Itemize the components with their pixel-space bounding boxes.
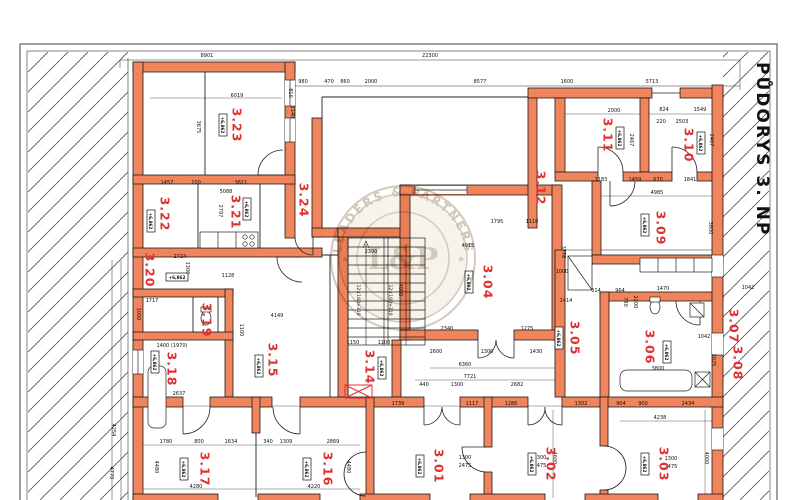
dimension-label: 1780 bbox=[160, 439, 173, 445]
dimension-label: 860 bbox=[340, 79, 350, 85]
room-number-label: 3.14 bbox=[363, 350, 378, 385]
svg-text:+6,862: +6,862 bbox=[220, 117, 225, 134]
room-number-label: 3.21 bbox=[229, 195, 244, 230]
door-3-23 bbox=[258, 150, 283, 175]
dimension-label: 1457 bbox=[161, 180, 174, 186]
dimension-label: 980 bbox=[298, 79, 308, 85]
dimension-label: 1600 bbox=[561, 79, 574, 85]
floor-plan-svg: 8901223009804708602000857716005713601936… bbox=[0, 0, 800, 500]
double-door-hall bbox=[424, 407, 460, 425]
door-3-15 bbox=[277, 257, 302, 282]
elevation-tag: +6,862 bbox=[697, 132, 705, 154]
svg-text:+6,862: +6,862 bbox=[379, 360, 384, 377]
elevation-tag: +6,862 bbox=[147, 210, 155, 232]
dimension-label: 1634 bbox=[225, 439, 238, 445]
svg-text:+6,862: +6,862 bbox=[181, 461, 186, 478]
svg-text:+6,862: +6,862 bbox=[617, 130, 622, 147]
elevation-tag: +6,862 bbox=[528, 453, 536, 475]
dimension-label: 2475 bbox=[459, 463, 472, 469]
dimension-label: 2503 bbox=[676, 119, 689, 125]
dimension-label: 1549 bbox=[694, 107, 707, 113]
swing-door-3-02-3-03 bbox=[604, 446, 626, 490]
watermark-monogram: L&P bbox=[368, 242, 439, 277]
dimension-label: 800 bbox=[194, 439, 204, 445]
room-number-label: 3.05 bbox=[568, 321, 583, 356]
dimension-label: 1117 bbox=[466, 401, 479, 407]
washer-3-06 bbox=[695, 372, 710, 387]
dimension-label: 4480 bbox=[153, 461, 159, 474]
dimension-label: 1110 bbox=[526, 219, 539, 225]
dimension-label: 2600 bbox=[430, 349, 443, 355]
elevation-tag: +6,862 bbox=[616, 127, 624, 149]
bathtub-3-06 bbox=[620, 370, 692, 391]
dimension-label: 1400 (1970) bbox=[157, 343, 188, 349]
elevation-tag: +6,862 bbox=[641, 214, 649, 236]
dimension-label: 6360 bbox=[459, 362, 472, 368]
elevation-tag: +6,862 bbox=[243, 198, 251, 220]
dimension-label: 1739 bbox=[392, 401, 405, 407]
svg-text:+6,862: +6,862 bbox=[642, 456, 647, 473]
elevation-tag: +6,862 bbox=[555, 327, 563, 349]
svg-text:+6,862: +6,862 bbox=[664, 344, 669, 361]
dimension-label: 2340 bbox=[441, 326, 454, 332]
room-number-label: 3.11 bbox=[601, 118, 616, 153]
dimension-label: 6019 bbox=[231, 93, 244, 99]
dimension-label: 22300 bbox=[422, 53, 438, 59]
room-number-label: 3.09 bbox=[654, 211, 669, 246]
dimension-label: 1414 bbox=[560, 298, 573, 304]
svg-text:+6,862: +6,862 bbox=[148, 213, 153, 230]
watermark-star-left: ★ bbox=[341, 255, 349, 265]
kitchen-counter-3-09 bbox=[640, 258, 712, 272]
elevation-tag: +6,862 bbox=[303, 458, 311, 480]
dimension-label: 900 bbox=[638, 401, 648, 407]
dimension-label: 100 bbox=[191, 180, 201, 186]
bathtub-3-18 bbox=[148, 366, 166, 428]
door-3-16 bbox=[273, 407, 300, 434]
room-number-label: 3.24 bbox=[297, 183, 312, 218]
svg-text:+6,862: +6,862 bbox=[169, 275, 186, 280]
shaft-marker bbox=[345, 385, 372, 398]
sheet-title: PŮDORYS 3. NP bbox=[752, 62, 775, 236]
dimension-label: 514 bbox=[591, 288, 601, 294]
room-number-label: 3.10 bbox=[682, 128, 697, 163]
dimension-label: 1795 bbox=[491, 219, 504, 225]
dimension-label: 1100 bbox=[378, 340, 391, 346]
sink-3-06 bbox=[690, 303, 704, 317]
dimension-label: 8901 bbox=[201, 53, 214, 59]
dimension-label: 4985 bbox=[651, 190, 664, 196]
dimension-label: 1300 bbox=[459, 455, 472, 461]
dimension-label: 1000 bbox=[135, 308, 141, 321]
dimension-label: 3800 bbox=[707, 222, 713, 235]
floor-plan-sheet: 8901223009804708602000857716005713601936… bbox=[0, 0, 800, 500]
room-number-label: 3.17 bbox=[198, 452, 213, 487]
dimension-label: 1150 bbox=[347, 340, 360, 346]
dimension-label: 1128 bbox=[222, 273, 235, 279]
dimension-label: 2682 bbox=[511, 382, 524, 388]
dimension-label: 2000 bbox=[608, 108, 621, 114]
dimension-label: 2637 bbox=[173, 391, 186, 397]
dimension-label: 1042 bbox=[698, 334, 711, 340]
swing-door-3-16-3-01 bbox=[344, 452, 366, 496]
room-number-label: 3.03 bbox=[657, 447, 672, 482]
dimension-label: 1000 bbox=[556, 269, 569, 275]
dimension-label: 1286 bbox=[505, 401, 518, 407]
elevation-tag: +6,862 bbox=[180, 458, 188, 480]
dimension-label: 780 bbox=[622, 297, 628, 307]
svg-text:+6,862: +6,862 bbox=[529, 456, 534, 473]
dimension-label: 1042 bbox=[742, 285, 755, 291]
dimension-label: 2434 bbox=[682, 401, 695, 407]
dimension-label: 3778 bbox=[560, 246, 566, 259]
dimension-label: 4238 bbox=[654, 415, 667, 421]
dimension-label: 1459 bbox=[629, 177, 642, 183]
dimension-label: 2724 bbox=[174, 254, 187, 260]
svg-text:+6,862: +6,862 bbox=[244, 201, 249, 218]
dimension-label: 3675 bbox=[195, 121, 201, 134]
dimension-label: 1302 bbox=[575, 401, 588, 407]
dimension-label: 7721 bbox=[464, 374, 477, 380]
door-3-17 bbox=[183, 407, 210, 434]
room-number-label: 3.08 bbox=[731, 346, 746, 381]
room-number-label: 3.12 bbox=[534, 171, 549, 206]
elevation-tag: +6,862 bbox=[255, 355, 263, 377]
dimension-label: 1140 bbox=[289, 106, 295, 119]
room-number-label: 3.01 bbox=[432, 449, 447, 484]
dimension-label: 2200 bbox=[632, 296, 638, 309]
dimension-label: 4000 bbox=[703, 452, 709, 465]
elevation-tag: +6,862 bbox=[378, 357, 386, 379]
dimension-label: 1841 bbox=[684, 177, 697, 183]
elevation-tag: +6,862 bbox=[416, 455, 424, 477]
dimension-label: 4220 bbox=[308, 484, 321, 490]
dimension-label: 1275 bbox=[521, 326, 534, 332]
watermark-star-right: ★ bbox=[457, 255, 465, 265]
dimension-label: 3800 bbox=[652, 366, 665, 372]
dimension-label: 2467 bbox=[708, 134, 714, 147]
dimension-label: 340 bbox=[263, 439, 273, 445]
dimension-label: 1430 bbox=[530, 349, 543, 355]
appliance-3-05 bbox=[568, 256, 592, 290]
svg-text:+6,862: +6,862 bbox=[417, 458, 422, 475]
dimension-label: 4480 bbox=[345, 461, 351, 474]
dimension-label: 4149 bbox=[271, 313, 284, 319]
room-number-label: 3.23 bbox=[230, 108, 245, 143]
svg-text:+6,862: +6,862 bbox=[304, 461, 309, 478]
room-number-label: 3.22 bbox=[158, 197, 173, 232]
dimension-label: 5713 bbox=[646, 79, 659, 85]
dimension-label: 1100 bbox=[238, 324, 244, 337]
door-3-09 bbox=[610, 181, 635, 206]
dimension-label: 1717 bbox=[146, 298, 159, 304]
elevation-tag: +6,862 bbox=[663, 341, 671, 363]
dimension-label: 2467 bbox=[628, 134, 634, 147]
room-number-label: 3.02 bbox=[544, 447, 559, 482]
svg-text:+6,862: +6,862 bbox=[256, 358, 261, 375]
dimension-label: 2000 bbox=[365, 79, 378, 85]
dimension-label: 2797 bbox=[217, 205, 223, 218]
double-door-3-02 bbox=[528, 407, 562, 425]
dimension-label: 2025 bbox=[710, 354, 716, 367]
room-number-label: 3.04 bbox=[481, 265, 496, 300]
dimension-label: 1470 bbox=[657, 286, 670, 292]
dimension-label: 8577 bbox=[474, 79, 487, 85]
dimension-label: 470 bbox=[324, 79, 334, 85]
dimension-label: 1300 bbox=[184, 262, 190, 275]
room-number-label: 3.15 bbox=[266, 343, 281, 378]
svg-text:+6,862: +6,862 bbox=[152, 354, 157, 371]
elevation-tag: +6,862 bbox=[166, 273, 188, 281]
room-number-label: 3.16 bbox=[321, 452, 336, 487]
elevation-tag: +6,862 bbox=[641, 453, 649, 475]
dimension-label: 670 bbox=[653, 177, 663, 183]
elevation-tag: +6,862 bbox=[151, 351, 159, 373]
svg-text:+6,862: +6,862 bbox=[698, 135, 703, 152]
watermark-stamp: LEADERS & PARTNERS L&P ★ ★ bbox=[330, 185, 476, 330]
dimension-label: 1300 bbox=[481, 349, 494, 355]
room-number-label: 3.20 bbox=[143, 253, 158, 288]
svg-text:+6,862: +6,862 bbox=[642, 217, 647, 234]
dimension-label: 1183 bbox=[595, 177, 608, 183]
dimension-label: 440 bbox=[419, 382, 429, 388]
dimension-label: 220 bbox=[656, 119, 666, 125]
svg-text:+6,862: +6,862 bbox=[556, 330, 561, 347]
dimension-label: 810 bbox=[287, 88, 293, 98]
room-number-label: 3.07 bbox=[727, 309, 742, 344]
dimension-label: 1309 bbox=[280, 439, 293, 445]
elevation-tag: +6,862 bbox=[219, 114, 227, 136]
dimension-label: 904 bbox=[616, 401, 626, 407]
room-number-label: 3.06 bbox=[643, 330, 658, 365]
dimension-label: 4770 bbox=[108, 467, 114, 480]
dimension-label: 2869 bbox=[327, 439, 340, 445]
dimension-label: 1300 bbox=[451, 382, 464, 388]
room-number-label: 3.18 bbox=[165, 352, 180, 387]
dimension-label: 964 bbox=[615, 288, 625, 294]
kitchen-counter-3-21 bbox=[200, 232, 258, 248]
dimension-label: 4254 bbox=[110, 424, 116, 437]
toilet-3-06 bbox=[650, 297, 660, 314]
dimension-label: 3611 bbox=[235, 180, 248, 186]
dimension-label: 824 bbox=[659, 107, 669, 113]
room-number-label: 3.19 bbox=[200, 303, 215, 338]
